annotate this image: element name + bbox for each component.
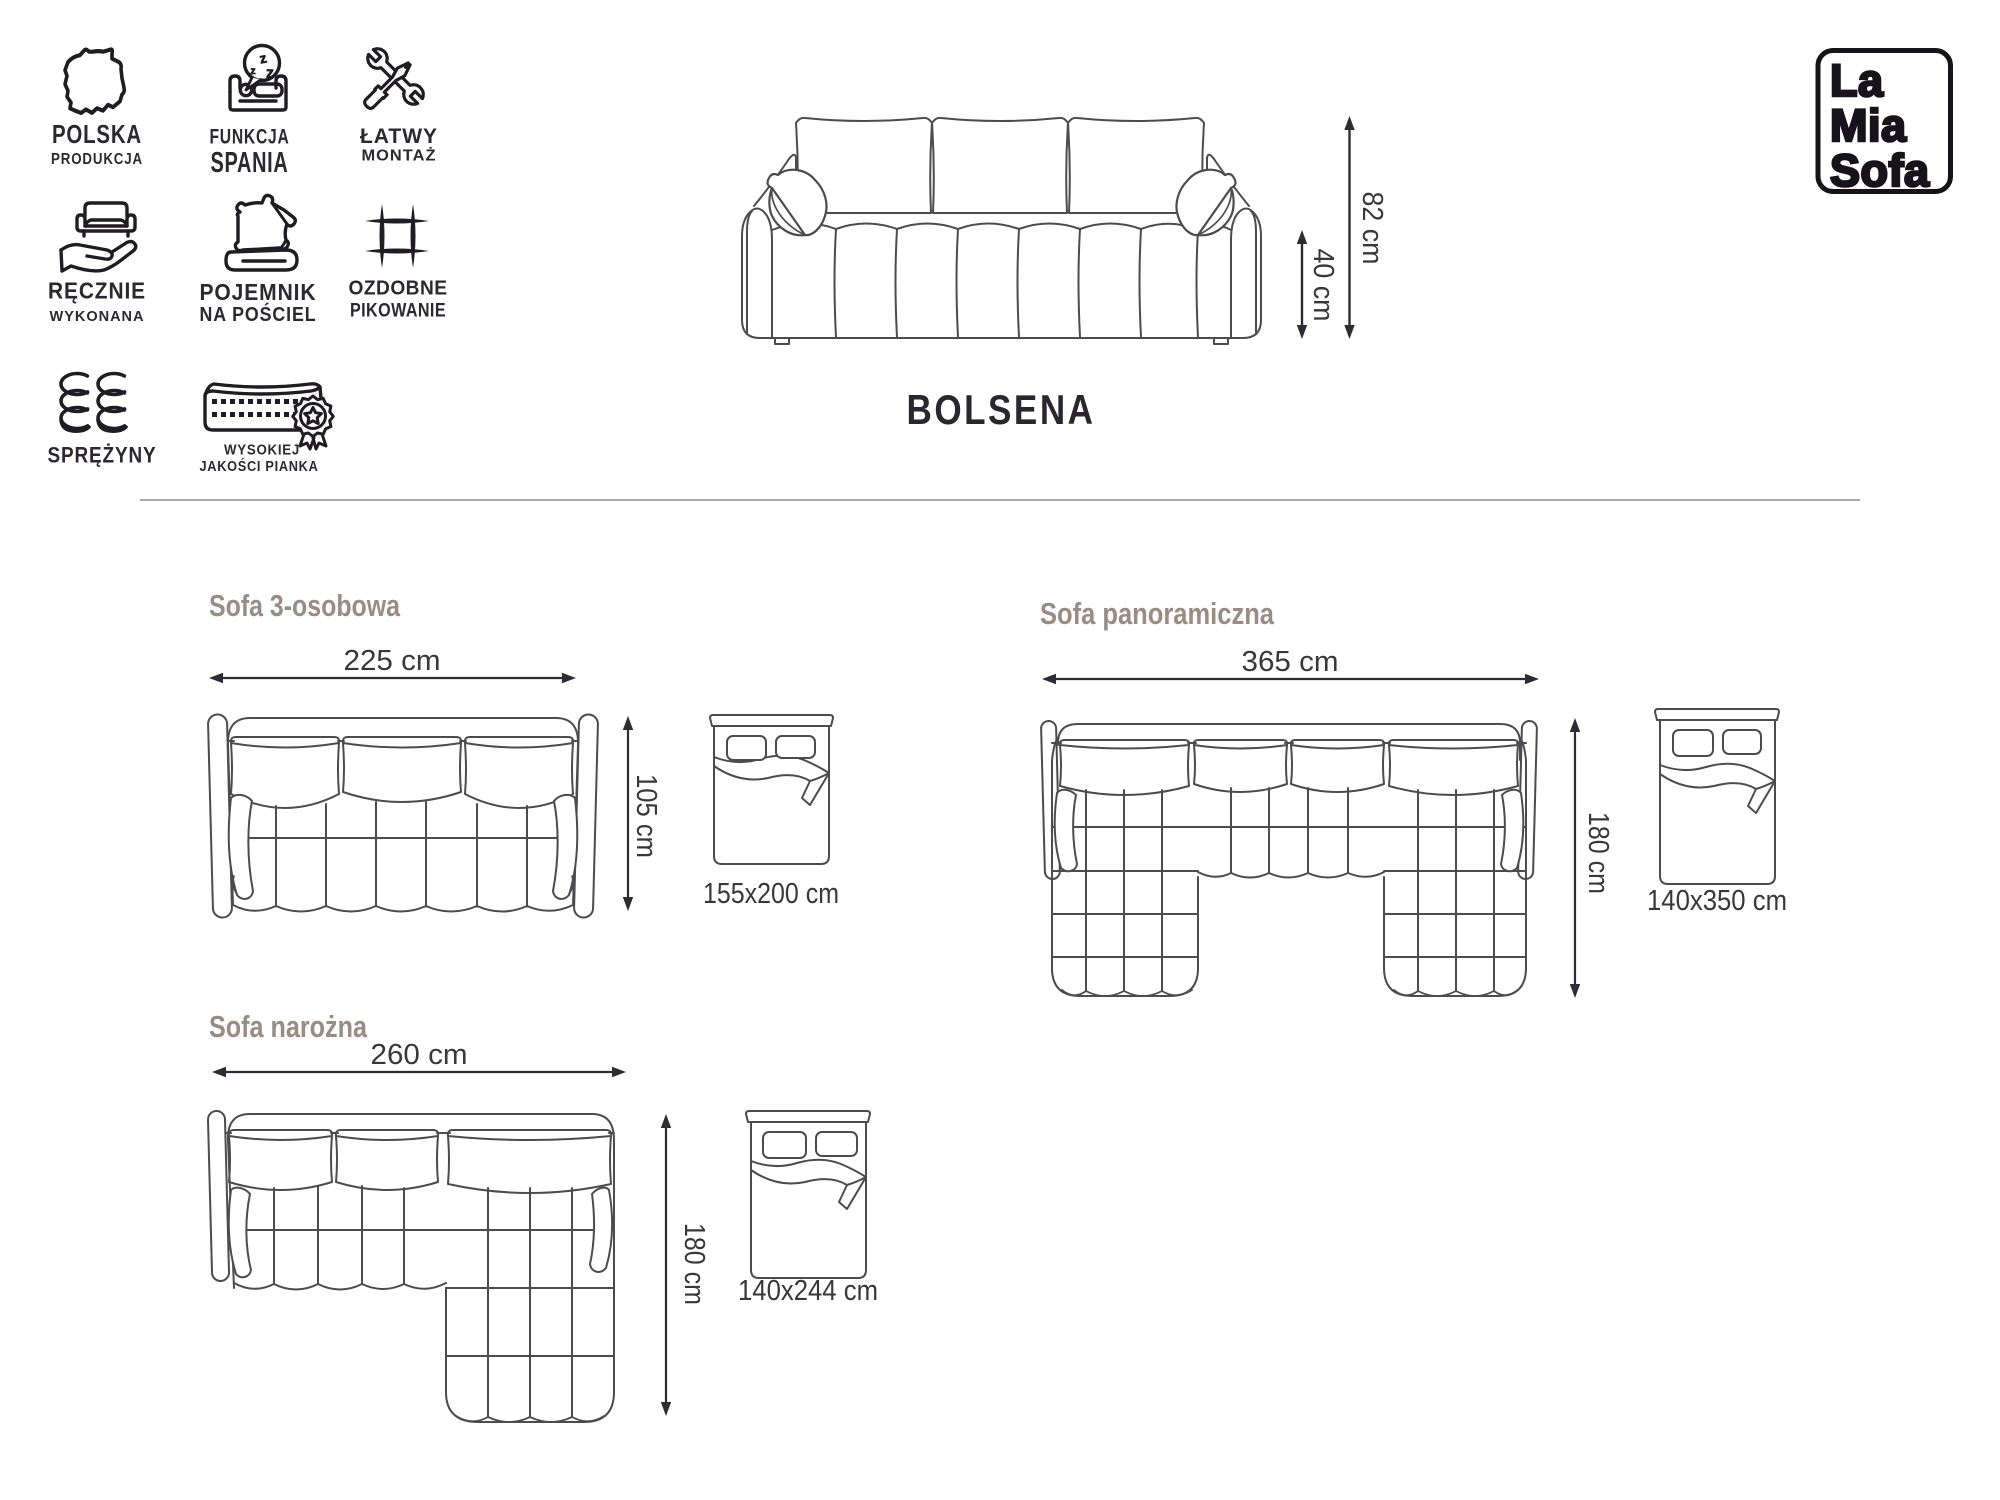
svg-text:WYKONANA: WYKONANA	[50, 308, 145, 325]
svg-text:225 cm: 225 cm	[344, 645, 441, 677]
svg-text:40 cm: 40 cm	[1307, 249, 1339, 322]
svg-text:MONTAŻ: MONTAŻ	[362, 147, 437, 165]
svg-text:155x200 cm: 155x200 cm	[703, 878, 839, 910]
svg-text:260 cm: 260 cm	[371, 1039, 468, 1071]
svg-text:140x350 cm: 140x350 cm	[1647, 885, 1787, 917]
svg-text:SPANIA: SPANIA	[211, 147, 289, 179]
svg-text:82 cm: 82 cm	[1356, 192, 1388, 265]
svg-text:ŁATWY: ŁATWY	[360, 124, 438, 148]
svg-text:z: z	[266, 65, 274, 82]
svg-text:NA POŚCIEL: NA POŚCIEL	[200, 302, 317, 326]
svg-text:POLSKA: POLSKA	[52, 119, 142, 149]
svg-text:OZDOBNE: OZDOBNE	[349, 277, 448, 300]
svg-text:La: La	[1830, 55, 1884, 106]
svg-text:WYSOKIEJ: WYSOKIEJ	[224, 443, 300, 459]
svg-text:FUNKCJA: FUNKCJA	[210, 126, 290, 149]
svg-text:Sofa narożna: Sofa narożna	[209, 1009, 368, 1044]
svg-text:Sofa 3-osobowa: Sofa 3-osobowa	[209, 588, 401, 623]
svg-text:z: z	[250, 65, 255, 77]
svg-text:Mia: Mia	[1830, 100, 1907, 151]
svg-text:POJEMNIK: POJEMNIK	[200, 279, 317, 305]
svg-text:140x244 cm: 140x244 cm	[738, 1275, 878, 1307]
svg-text:PIKOWANIE: PIKOWANIE	[350, 300, 446, 322]
svg-text:SPRĘŻYNY: SPRĘŻYNY	[48, 443, 157, 468]
svg-text:PRODUKCJA: PRODUKCJA	[51, 151, 143, 168]
svg-text:105 cm: 105 cm	[630, 774, 662, 858]
svg-text:365 cm: 365 cm	[1242, 646, 1339, 678]
svg-text:JAKOŚCI PIANKA: JAKOŚCI PIANKA	[200, 457, 319, 475]
svg-text:Sofa panoramiczna: Sofa panoramiczna	[1040, 596, 1275, 631]
svg-text:Sofa: Sofa	[1830, 145, 1930, 196]
svg-text:RĘCZNIE: RĘCZNIE	[48, 278, 146, 304]
svg-text:180 cm: 180 cm	[678, 1223, 710, 1305]
svg-text:180 cm: 180 cm	[1582, 812, 1614, 894]
svg-text:BOLSENA: BOLSENA	[907, 386, 1096, 433]
